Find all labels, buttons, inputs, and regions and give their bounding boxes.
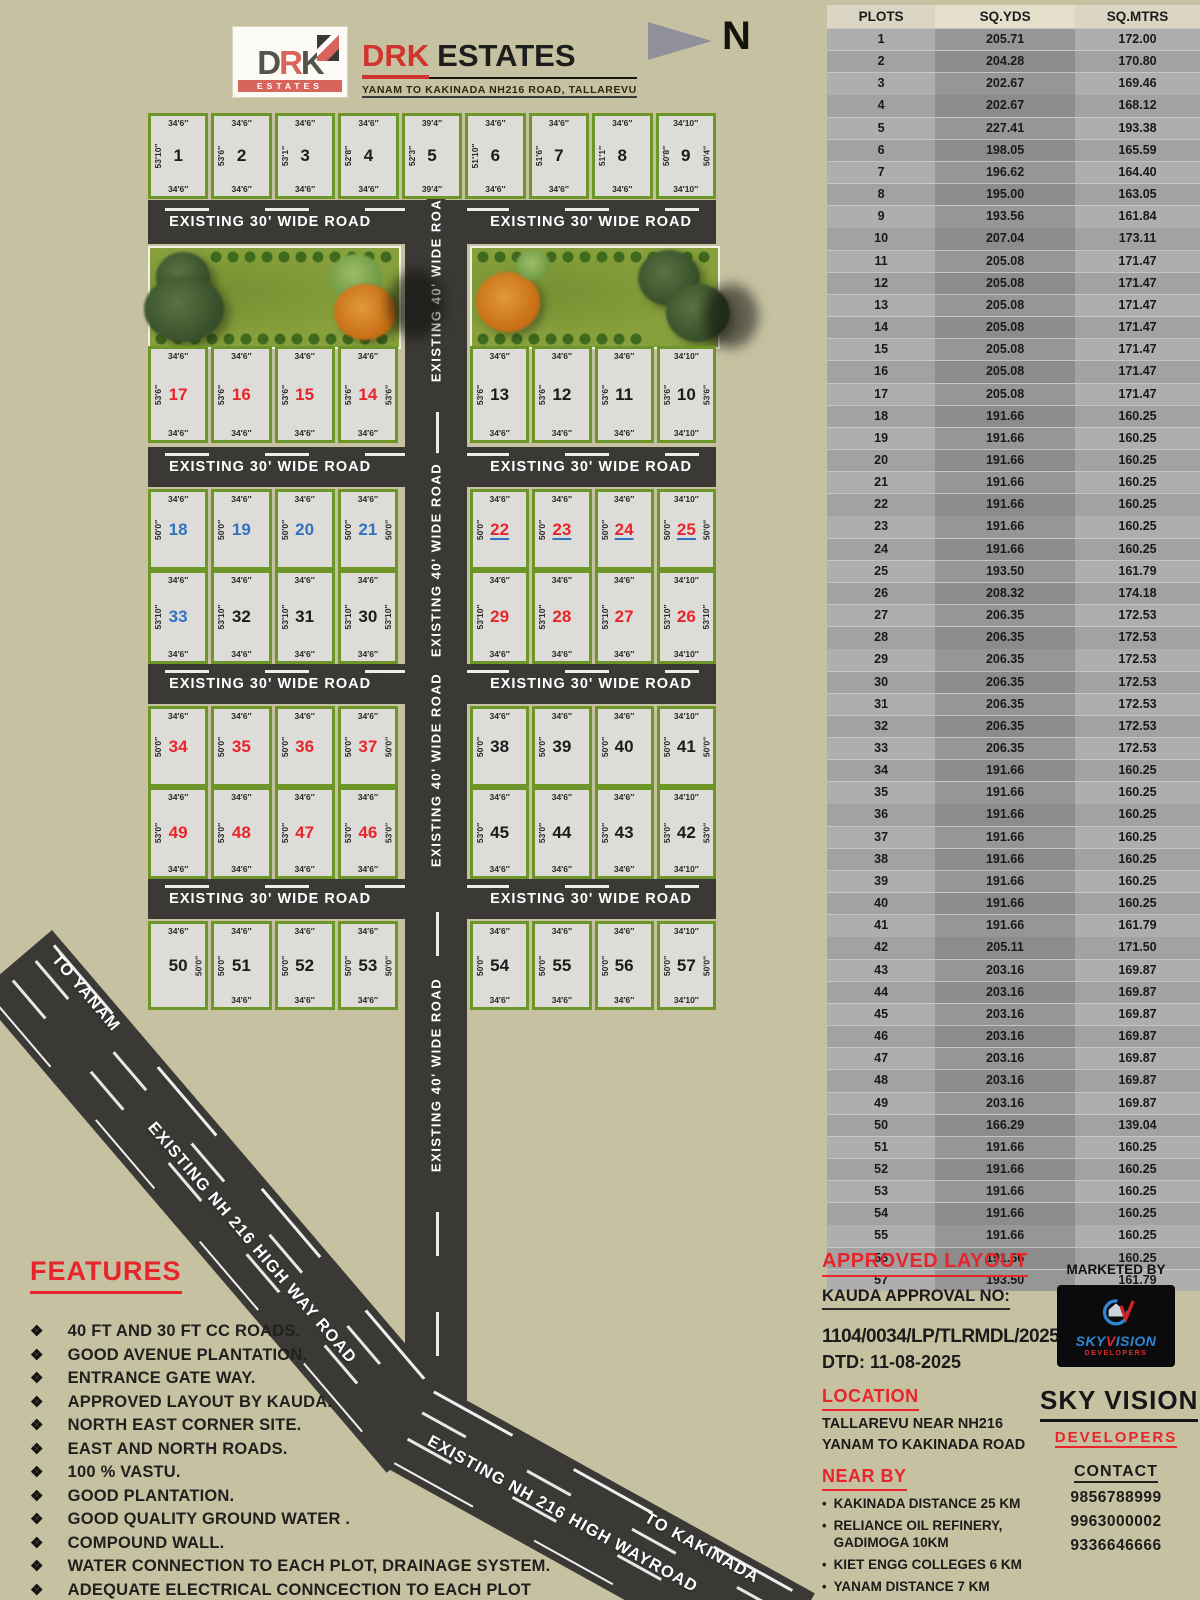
plot-27: 34′6″34′6″53′10″27: [595, 570, 654, 664]
table-row: 49203.16169.87: [827, 1092, 1200, 1114]
plot-number: 48: [214, 790, 268, 876]
feature-item: ❖40 FT AND 30 FT CC ROADS.: [30, 1322, 595, 1341]
table-cell: 172.53: [1075, 649, 1200, 670]
table-cell: 160.25: [1075, 1137, 1200, 1158]
plot-area-table: PLOTS SQ.YDS SQ.MTRS 1205.71172.002204.2…: [827, 5, 1200, 1291]
table-row: 7196.62164.40: [827, 161, 1200, 183]
table-row: 16205.08171.47: [827, 360, 1200, 382]
plot-13: 34′6″34′6″53′6″13: [470, 346, 529, 443]
table-cell: 160.25: [1075, 893, 1200, 914]
plot-number: 22: [473, 492, 526, 567]
nearby-text: YANAM DISTANCE 7 KM: [834, 1579, 990, 1596]
table-cell: 191.66: [935, 428, 1075, 449]
table-cell: 2: [827, 51, 935, 72]
table-cell: 171.47: [1075, 339, 1200, 360]
table-cell: 15: [827, 339, 935, 360]
table-cell: 191.66: [935, 827, 1075, 848]
nearby-text: KAKINADA DISTANCE 25 KM: [834, 1496, 1021, 1513]
table-cell: 39: [827, 871, 935, 892]
plot-15: 34′6″34′6″53′6″15: [275, 346, 335, 443]
plot-57: 34′10″34′10″50′0″50′0″57: [657, 921, 716, 1010]
table-row: 6198.05165.59: [827, 139, 1200, 161]
table-cell: 44: [827, 982, 935, 1003]
plot-11: 34′6″34′6″53′6″11: [595, 346, 654, 443]
table-cell: 171.47: [1075, 384, 1200, 405]
feature-text: ADEQUATE ELECTRICAL CONNCECTION TO EACH …: [68, 1581, 531, 1600]
skyvision-logo: SKYVISION DEVELOPERS: [1057, 1285, 1175, 1367]
table-cell: 160.25: [1075, 782, 1200, 803]
table-cell: 164.40: [1075, 162, 1200, 183]
plot-42: 34′10″34′10″53′0″53′0″42: [657, 787, 716, 879]
table-row: 9193.56161.84: [827, 205, 1200, 227]
plot-number: 34: [151, 709, 205, 784]
diamond-bullet-icon: ❖: [30, 1534, 44, 1552]
plot-44: 34′6″34′6″53′0″44: [532, 787, 591, 879]
table-cell: 191.66: [935, 1181, 1075, 1202]
to-yanam-label: TO YANAM: [47, 951, 123, 1036]
plot-block: 34′6″34′6″53′10″3334′6″34′6″53′10″3234′6…: [148, 570, 398, 664]
plot-block: 34′6″50′0″1834′6″50′0″1934′6″50′0″2034′6…: [148, 489, 398, 570]
contact-phone: 9963000002: [1040, 1513, 1192, 1531]
plot-36: 34′6″50′0″36: [275, 706, 335, 787]
diamond-bullet-icon: ❖: [30, 1369, 44, 1387]
dot-bullet-icon: •: [822, 1518, 827, 1552]
plot-39: 34′6″50′0″39: [532, 706, 591, 787]
road-40ft-label: EXISTING 40' WIDE ROAD: [427, 968, 446, 1182]
table-cell: 191.66: [935, 1203, 1075, 1224]
table-row: 38191.66160.25: [827, 848, 1200, 870]
table-cell: 172.53: [1075, 627, 1200, 648]
road-30ft-label: EXISTING 30' WIDE ROAD: [161, 675, 379, 693]
table-cell: 21: [827, 472, 935, 493]
table-cell: 7: [827, 162, 935, 183]
plot-block: 34′6″34′6″50′0″5434′6″34′6″50′0″5534′6″3…: [470, 921, 716, 1010]
plot-8: 34′6″34′6″51′1″8: [592, 113, 652, 199]
road-40ft-label: EXISTING 40' WIDE ROAD: [427, 453, 446, 667]
nearby-text: KIET ENGG COLLEGES 6 KM: [834, 1557, 1022, 1574]
table-cell: 169.87: [1075, 1026, 1200, 1047]
road-30ft-label: EXISTING 30' WIDE ROAD: [482, 675, 700, 693]
table-row: 34191.66160.25: [827, 759, 1200, 781]
features-title: FEATURES: [30, 1256, 182, 1294]
table-cell: 203.16: [935, 1048, 1075, 1069]
table-row: 55191.66160.25: [827, 1224, 1200, 1246]
features-panel: FEATURES ❖40 FT AND 30 FT CC ROADS.❖GOOD…: [30, 1256, 595, 1600]
table-row: 27206.35172.53: [827, 604, 1200, 626]
plot-number: 38: [473, 709, 526, 784]
table-cell: 160.25: [1075, 827, 1200, 848]
table-cell: 160.25: [1075, 450, 1200, 471]
plot-2: 34′6″34′6″53′6″2: [211, 113, 271, 199]
table-row: 51191.66160.25: [827, 1136, 1200, 1158]
table-row: 45203.16169.87: [827, 1003, 1200, 1025]
table-cell: 191.66: [935, 406, 1075, 427]
table-row: 26208.32174.18: [827, 582, 1200, 604]
plot-number: 46: [341, 790, 395, 876]
table-cell: 206.35: [935, 627, 1075, 648]
feature-text: GOOD AVENUE PLANTATION.: [68, 1346, 308, 1365]
table-cell: 191.66: [935, 516, 1075, 537]
plot-number: 1: [151, 116, 205, 196]
plot-10: 34′10″34′10″53′6″53′6″10: [657, 346, 716, 443]
plot-number: 24: [598, 492, 651, 567]
plot-number: 12: [535, 349, 588, 440]
diamond-bullet-icon: ❖: [30, 1510, 44, 1528]
plot-number: 28: [535, 573, 588, 661]
table-cell: 191.66: [935, 871, 1075, 892]
road-30ft-label: EXISTING 30' WIDE ROAD: [161, 890, 379, 908]
plot-number: 39: [535, 709, 588, 784]
feature-text: WATER CONNECTION TO EACH PLOT, DRAINAGE …: [68, 1557, 551, 1576]
plot-number: 26: [660, 573, 713, 661]
table-row: 28206.35172.53: [827, 626, 1200, 648]
table-row: 20191.66160.25: [827, 449, 1200, 471]
feature-text: COMPOUND WALL.: [68, 1534, 225, 1553]
plot-number: 52: [278, 924, 332, 1007]
table-cell: 139.04: [1075, 1115, 1200, 1136]
feature-item: ❖ADEQUATE ELECTRICAL CONNCECTION TO EACH…: [30, 1581, 595, 1600]
plot-26: 34′10″34′10″53′10″53′10″26: [657, 570, 716, 664]
developer-sub: DEVELOPERS: [1055, 1429, 1178, 1448]
plot-number: 49: [151, 790, 205, 876]
table-cell: 160.25: [1075, 539, 1200, 560]
feature-item: ❖GOOD QUALITY GROUND WATER .: [30, 1510, 595, 1529]
plot-41: 34′10″50′0″50′0″41: [657, 706, 716, 787]
table-row: 44203.16169.87: [827, 981, 1200, 1003]
plot-number: 19: [214, 492, 268, 567]
plot-3: 34′6″34′6″53′1″3: [275, 113, 335, 199]
diamond-bullet-icon: ❖: [30, 1557, 44, 1575]
table-row: 15205.08171.47: [827, 338, 1200, 360]
tree-icon: [334, 284, 396, 340]
table-row: 41191.66161.79: [827, 914, 1200, 936]
table-row: 22191.66160.25: [827, 493, 1200, 515]
diamond-bullet-icon: ❖: [30, 1346, 44, 1364]
table-row: 12205.08171.47: [827, 272, 1200, 294]
table-cell: 1: [827, 29, 935, 50]
table-cell: 160.25: [1075, 516, 1200, 537]
table-cell: 169.87: [1075, 1048, 1200, 1069]
skyvision-logo-sub: DEVELOPERS: [1085, 1350, 1148, 1357]
plot-number: 25: [660, 492, 713, 567]
table-row: 36191.66160.25: [827, 803, 1200, 825]
table-cell: 50: [827, 1115, 935, 1136]
table-cell: 6: [827, 140, 935, 161]
table-cell: 46: [827, 1026, 935, 1047]
table-cell: 191.66: [935, 849, 1075, 870]
table-row: 19191.66160.25: [827, 427, 1200, 449]
table-cell: 191.66: [935, 472, 1075, 493]
table-cell: 12: [827, 273, 935, 294]
table-row: 33206.35172.53: [827, 737, 1200, 759]
table-cell: 161.84: [1075, 206, 1200, 227]
plot-52: 34′6″34′6″50′0″52: [275, 921, 335, 1010]
table-cell: 202.67: [935, 95, 1075, 116]
road-40ft-vertical: EXISTING 40' WIDE ROAD EXISTING 40' WIDE…: [405, 200, 467, 1400]
developer-panel: MARKETED BY SKYVISION DEVELOPERS SKY VIS…: [1040, 1262, 1192, 1555]
table-cell: 171.47: [1075, 295, 1200, 316]
plot-number: 37: [341, 709, 395, 784]
table-cell: 160.25: [1075, 1225, 1200, 1246]
table-cell: 206.35: [935, 672, 1075, 693]
table-row: 32206.35172.53: [827, 715, 1200, 737]
table-row: 14205.08171.47: [827, 316, 1200, 338]
table-row: 53191.66160.25: [827, 1180, 1200, 1202]
plot-17: 34′6″34′6″53′6″17: [148, 346, 208, 443]
table-cell: 33: [827, 738, 935, 759]
feature-item: ❖WATER CONNECTION TO EACH PLOT, DRAINAGE…: [30, 1557, 595, 1576]
table-row: 52191.66160.25: [827, 1158, 1200, 1180]
table-row: 11205.08171.47: [827, 250, 1200, 272]
table-row: 8195.00163.05: [827, 183, 1200, 205]
table-cell: 24: [827, 539, 935, 560]
table-cell: 227.41: [935, 118, 1075, 139]
plot-number: 5: [405, 116, 459, 196]
table-cell: 191.66: [935, 804, 1075, 825]
plot-number: 57: [660, 924, 713, 1007]
table-cell: 203.16: [935, 982, 1075, 1003]
plot-12: 34′6″34′6″53′6″12: [532, 346, 591, 443]
table-cell: 20: [827, 450, 935, 471]
plot-49: 34′6″34′6″53′0″49: [148, 787, 208, 879]
table-cell: 171.47: [1075, 361, 1200, 382]
diamond-bullet-icon: ❖: [30, 1463, 44, 1481]
table-cell: 206.35: [935, 649, 1075, 670]
plot-50: 34′6″50′0″50: [148, 921, 208, 1010]
road-30ft-label: EXISTING 30' WIDE ROAD: [482, 890, 700, 908]
plot-number: 35: [214, 709, 268, 784]
table-cell: 3: [827, 73, 935, 94]
table-header-sqmtrs: SQ.MTRS: [1075, 5, 1200, 28]
location-line: YANAM TO KAKINADA ROAD: [822, 1437, 1047, 1453]
table-cell: 191.66: [935, 1137, 1075, 1158]
table-cell: 38: [827, 849, 935, 870]
feature-item: ❖ENTRANCE GATE WAY.: [30, 1369, 595, 1388]
table-cell: 160.25: [1075, 1203, 1200, 1224]
tree-icon: [144, 276, 224, 342]
plot-22: 34′6″50′0″22: [470, 489, 529, 570]
table-cell: 10: [827, 228, 935, 249]
dot-bullet-icon: •: [822, 1579, 827, 1596]
developer-name: SKY VISION: [1040, 1385, 1198, 1422]
plot-46: 34′6″34′6″53′0″53′0″46: [338, 787, 398, 879]
table-cell: 26: [827, 583, 935, 604]
plot-number: 50: [151, 924, 205, 1007]
approval-panel: APPROVED LAYOUT KAUDA APPROVAL NO: 1104/…: [822, 1250, 1047, 1595]
plot-number: 33: [151, 573, 205, 661]
nearby-title: NEAR BY: [822, 1466, 907, 1491]
plot-20: 34′6″50′0″20: [275, 489, 335, 570]
road-40ft-label: EXISTING 40' WIDE ROAD: [427, 663, 446, 877]
table-cell: 49: [827, 1093, 935, 1114]
plot-block: 34′6″34′6″53′0″4534′6″34′6″53′0″4434′6″3…: [470, 787, 716, 879]
feature-text: 40 FT AND 30 FT CC ROADS.: [68, 1322, 301, 1341]
plot-number: 27: [598, 573, 651, 661]
plot-number: 16: [214, 349, 268, 440]
table-cell: 45: [827, 1004, 935, 1025]
table-cell: 205.08: [935, 339, 1075, 360]
plot-block: 34′6″50′0″3834′6″50′0″3934′6″50′0″4034′1…: [470, 706, 716, 787]
feature-text: ENTRANCE GATE WAY.: [68, 1369, 256, 1388]
plot-53: 34′6″34′6″50′0″50′0″53: [338, 921, 398, 1010]
plot-56: 34′6″34′6″50′0″56: [595, 921, 654, 1010]
table-cell: 51: [827, 1137, 935, 1158]
table-cell: 191.66: [935, 450, 1075, 471]
table-cell: 11: [827, 251, 935, 272]
plot-number: 13: [473, 349, 526, 440]
plot-30: 34′6″34′6″53′10″53′10″30: [338, 570, 398, 664]
plot-51: 34′6″34′6″50′0″51: [211, 921, 271, 1010]
table-cell: 36: [827, 804, 935, 825]
table-cell: 172.53: [1075, 605, 1200, 626]
feature-item: ❖NORTH EAST CORNER SITE.: [30, 1416, 595, 1435]
plot-number: 43: [598, 790, 651, 876]
tree-shadow: [388, 270, 444, 338]
plot-number: 10: [660, 349, 713, 440]
table-cell: 34: [827, 760, 935, 781]
table-cell: 191.66: [935, 782, 1075, 803]
feature-text: APPROVED LAYOUT BY KAUDA.: [68, 1393, 332, 1412]
nearby-item: •RELIANCE OIL REFINERY, GADIMOGA 10KM: [822, 1518, 1047, 1552]
kauda-approval-label: KAUDA APPROVAL NO:: [822, 1287, 1010, 1310]
table-cell: 43: [827, 960, 935, 981]
table-row: 48203.16169.87: [827, 1069, 1200, 1091]
table-cell: 18: [827, 406, 935, 427]
table-cell: 195.00: [935, 184, 1075, 205]
table-cell: 205.08: [935, 384, 1075, 405]
plot-number: 41: [660, 709, 713, 784]
contact-phone: 9856788999: [1040, 1489, 1192, 1507]
table-row: 10207.04173.11: [827, 227, 1200, 249]
plot-number: 4: [341, 116, 395, 196]
table-row: 39191.66160.25: [827, 870, 1200, 892]
plot-number: 45: [473, 790, 526, 876]
plot-29: 34′6″34′6″53′10″29: [470, 570, 529, 664]
table-cell: 4: [827, 95, 935, 116]
table-cell: 172.00: [1075, 29, 1200, 50]
table-cell: 170.80: [1075, 51, 1200, 72]
table-cell: 163.05: [1075, 184, 1200, 205]
table-row: 40191.66160.25: [827, 892, 1200, 914]
plot-number: 3: [278, 116, 332, 196]
table-cell: 160.25: [1075, 1159, 1200, 1180]
feature-item: ❖GOOD PLANTATION.: [30, 1487, 595, 1506]
table-header-plots: PLOTS: [827, 5, 935, 28]
tree-icon: [516, 250, 550, 280]
table-cell: 55: [827, 1225, 935, 1246]
table-cell: 206.35: [935, 738, 1075, 759]
table-cell: 191.66: [935, 1225, 1075, 1246]
diamond-bullet-icon: ❖: [30, 1393, 44, 1411]
table-cell: 169.87: [1075, 982, 1200, 1003]
table-cell: 13: [827, 295, 935, 316]
table-cell: 40: [827, 893, 935, 914]
table-cell: 29: [827, 649, 935, 670]
feature-text: NORTH EAST CORNER SITE.: [68, 1416, 302, 1435]
table-cell: 41: [827, 915, 935, 936]
table-cell: 169.87: [1075, 1093, 1200, 1114]
table-cell: 205.08: [935, 251, 1075, 272]
approved-layout-title: APPROVED LAYOUT: [822, 1250, 1028, 1277]
table-cell: 171.47: [1075, 251, 1200, 272]
table-header-sqyds: SQ.YDS: [935, 5, 1075, 28]
plot-block: 34′6″50′0″3434′6″50′0″3534′6″50′0″3634′6…: [148, 706, 398, 787]
table-cell: 32: [827, 716, 935, 737]
table-row: 37191.66160.25: [827, 826, 1200, 848]
table-cell: 172.53: [1075, 672, 1200, 693]
table-row: 24191.66160.25: [827, 538, 1200, 560]
table-cell: 198.05: [935, 140, 1075, 161]
feature-item: ❖EAST AND NORTH ROADS.: [30, 1440, 595, 1459]
plot-32: 34′6″34′6″53′10″32: [211, 570, 271, 664]
plot-number: 23: [535, 492, 588, 567]
plot-number: 47: [278, 790, 332, 876]
plot-number: 36: [278, 709, 332, 784]
road-30ft-label: EXISTING 30' WIDE ROAD: [482, 458, 700, 476]
table-cell: 160.25: [1075, 849, 1200, 870]
table-cell: 193.38: [1075, 118, 1200, 139]
plot-28: 34′6″34′6″53′10″28: [532, 570, 591, 664]
nearby-item: •YANAM DISTANCE 7 KM: [822, 1579, 1047, 1596]
dot-bullet-icon: •: [822, 1557, 827, 1574]
table-cell: 30: [827, 672, 935, 693]
skyvision-logo-icon: [1091, 1296, 1141, 1332]
table-row: 47203.16169.87: [827, 1047, 1200, 1069]
plot-55: 34′6″34′6″50′0″55: [532, 921, 591, 1010]
location-line: TALLAREVU NEAR NH216: [822, 1416, 1047, 1432]
table-cell: 205.08: [935, 273, 1075, 294]
table-cell: 208.32: [935, 583, 1075, 604]
table-cell: 160.25: [1075, 804, 1200, 825]
table-cell: 172.53: [1075, 716, 1200, 737]
table-cell: 19: [827, 428, 935, 449]
feature-text: GOOD PLANTATION.: [68, 1487, 235, 1506]
table-cell: 205.08: [935, 361, 1075, 382]
table-cell: 205.71: [935, 29, 1075, 50]
plot-number: 54: [473, 924, 526, 1007]
table-cell: 160.25: [1075, 760, 1200, 781]
table-cell: 203.16: [935, 1070, 1075, 1091]
table-cell: 160.25: [1075, 406, 1200, 427]
table-cell: 203.16: [935, 1026, 1075, 1047]
table-cell: 171.47: [1075, 273, 1200, 294]
nearby-item: •KAKINADA DISTANCE 25 KM: [822, 1496, 1047, 1513]
table-cell: 160.25: [1075, 871, 1200, 892]
plot-16: 34′6″34′6″53′6″16: [211, 346, 271, 443]
tree-icon: [476, 272, 540, 332]
plot-19: 34′6″50′0″19: [211, 489, 271, 570]
marketed-by-label: MARKETED BY: [1040, 1262, 1192, 1277]
table-cell: 171.50: [1075, 937, 1200, 958]
table-cell: 8: [827, 184, 935, 205]
plot-number: 8: [595, 116, 649, 196]
table-row: 21191.66160.25: [827, 471, 1200, 493]
plot-number: 11: [598, 349, 651, 440]
table-cell: 206.35: [935, 716, 1075, 737]
plot-number: 6: [468, 116, 522, 196]
table-cell: 166.29: [935, 1115, 1075, 1136]
plot-14: 34′6″34′6″53′6″53′6″14: [338, 346, 398, 443]
plot-9: 34′10″34′10″50′8″50′4″9: [656, 113, 716, 199]
table-row: 54191.66160.25: [827, 1202, 1200, 1224]
plot-7: 34′6″34′6″51′6″7: [529, 113, 589, 199]
table-cell: 173.11: [1075, 228, 1200, 249]
table-header-row: PLOTS SQ.YDS SQ.MTRS: [827, 5, 1200, 28]
plot-5: 39′4″39′4″52′3″5: [402, 113, 462, 199]
table-cell: 202.67: [935, 73, 1075, 94]
table-cell: 191.66: [935, 915, 1075, 936]
table-cell: 206.35: [935, 694, 1075, 715]
